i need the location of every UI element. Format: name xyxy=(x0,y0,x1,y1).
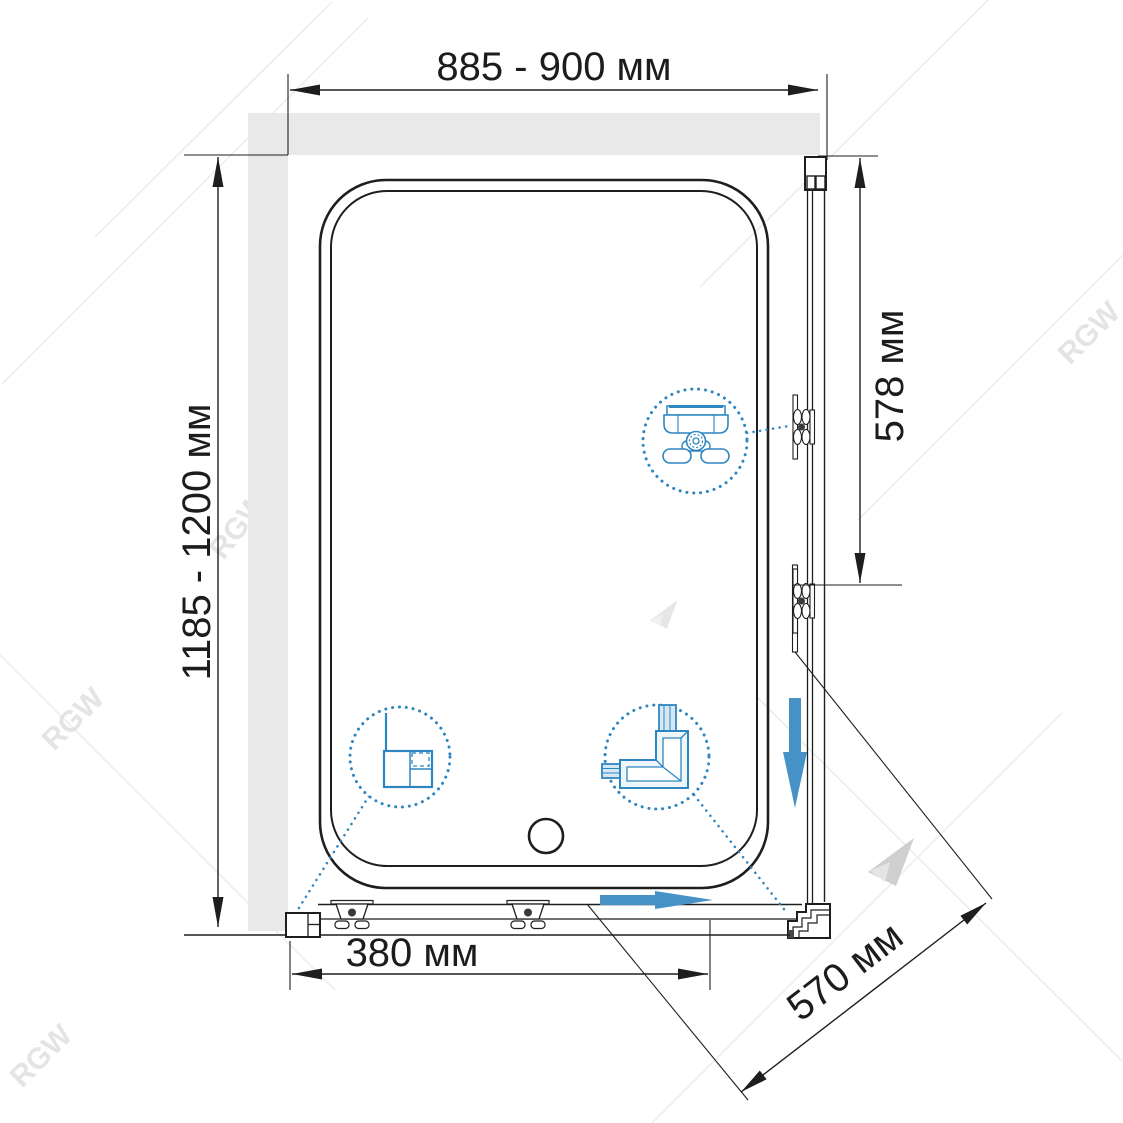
side-roller-lower xyxy=(793,569,815,633)
watermark-text: RGW xyxy=(36,681,112,757)
callout-corner-connector xyxy=(602,705,787,913)
callout-leader xyxy=(694,795,787,913)
bottom-roller-right xyxy=(507,901,549,929)
bottom-roller-left xyxy=(331,901,373,929)
shower-enclosure-technical-drawing: RGW RGW RGW RGW xyxy=(0,0,1123,1123)
watermark-text: RGW xyxy=(4,1018,80,1094)
arrowhead-left xyxy=(292,969,322,980)
wall-left xyxy=(248,113,288,931)
dim-label-right-side: 578 мм xyxy=(868,310,912,443)
dim-label-left-height: 1185 - 1200 мм xyxy=(175,404,219,681)
brand-plane-logo xyxy=(650,600,678,629)
slide-direction-right-arrow xyxy=(600,891,713,909)
plan-view-svg: RGW RGW RGW RGW xyxy=(0,0,1123,1123)
side-roller-upper xyxy=(793,395,815,459)
corner-connector-part xyxy=(788,904,830,938)
arrowhead-right xyxy=(788,85,818,96)
dim-label-top-width: 885 - 900 мм xyxy=(436,45,671,89)
dim-label-door-380: 380 мм xyxy=(346,931,479,975)
arrowhead-down xyxy=(213,897,224,927)
right-glass-panel xyxy=(788,157,830,938)
watermark-layer: RGW RGW RGW RGW xyxy=(0,0,1123,1123)
arrowhead-down xyxy=(855,553,866,583)
arrowhead-lower-left xyxy=(741,1071,767,1093)
slide-direction-down-arrow xyxy=(783,698,807,808)
arrowhead-up xyxy=(855,158,866,188)
callout-leader xyxy=(297,796,369,911)
watermark-diagonal-lines xyxy=(0,0,1123,1123)
wall-top xyxy=(248,113,820,155)
arrowhead-right xyxy=(678,969,708,980)
dimension-door-380: 380 мм xyxy=(290,920,710,990)
brand-plane-logo xyxy=(868,838,914,886)
wall-bands xyxy=(248,113,820,931)
watermark-text: RGW xyxy=(1052,295,1123,371)
arrowhead-left xyxy=(290,85,320,96)
drain-hole xyxy=(529,819,563,853)
dimension-right-side: 578 мм xyxy=(793,156,912,585)
